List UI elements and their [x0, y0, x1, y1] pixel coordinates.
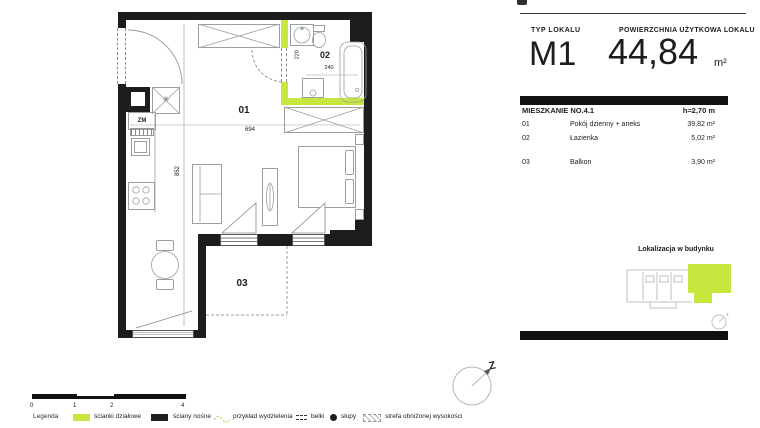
washer-door — [310, 90, 316, 96]
legend-item-label: ścianki działowe — [94, 414, 141, 421]
usable-area-value: 44,84 — [608, 34, 698, 70]
divider-bar — [520, 331, 728, 340]
header-rule — [520, 13, 746, 14]
scale-segment — [77, 396, 114, 399]
balcony-door-swing — [292, 203, 325, 233]
floorplan-sheet: ZM ✳ 01 02 03 694 852 220 240 Z z — [0, 0, 760, 428]
window-opening-line — [136, 311, 192, 328]
load-bearing-wall-swatch — [151, 414, 168, 421]
lowered-height-zone-icon — [363, 414, 381, 422]
sofa-lines — [200, 166, 221, 222]
scale-segment — [114, 394, 186, 399]
room-area: 39,82 m² — [640, 121, 715, 128]
balcony-door-swing — [222, 203, 256, 233]
room-name: Balkon — [570, 159, 591, 166]
room-no: 01 — [522, 121, 530, 128]
compass-icon — [453, 367, 491, 405]
beam-icon — [296, 415, 307, 416]
apartment-title: MIESZKANIE NO.4.1 — [522, 107, 594, 115]
legend-title: Legenda — [33, 414, 58, 421]
room-name: Pokój dzienny + aneks — [570, 121, 640, 128]
room-no: 03 — [522, 159, 530, 166]
scale-tick: 1 — [73, 403, 76, 409]
bathroom-door-swing — [252, 50, 284, 82]
balcony-boundary — [206, 246, 287, 315]
washbasin-tap — [301, 27, 303, 29]
room-area: 5,02 m² — [640, 135, 715, 142]
usable-area-unit: m² — [714, 58, 727, 69]
ceiling-height: h=2,70 m — [620, 107, 715, 115]
bathtub-inner — [344, 46, 362, 98]
beam-icon — [296, 419, 307, 420]
building-locator — [627, 264, 731, 308]
dining-table — [152, 252, 179, 279]
partition-example-icon — [214, 416, 230, 422]
fridge-cross — [152, 87, 180, 114]
wardrobe-cross — [198, 24, 280, 48]
highlighted-unit — [688, 264, 731, 303]
wardrobe-cross — [284, 107, 364, 133]
unit-type-label: TYP LOKALU — [531, 27, 581, 34]
partition-wall-swatch — [73, 414, 90, 421]
entry-door-swing — [128, 30, 182, 84]
location-title: Lokalizacja w budynku — [616, 246, 736, 253]
stove-burner — [143, 198, 149, 204]
room-area: 3,90 m² — [640, 159, 715, 166]
stove-burner — [143, 187, 149, 193]
scale-tick: 2 — [110, 403, 113, 409]
mini-compass-icon — [712, 315, 726, 329]
toilet-bowl — [313, 33, 326, 48]
scale-tick: 4 — [181, 403, 184, 409]
legend-item-label: słupy — [341, 414, 356, 421]
legend-item-label: strefa obniżonej wysokości — [385, 414, 462, 421]
scale-tick: 0 — [30, 403, 33, 409]
legend-item-label: ściany nośne — [173, 414, 211, 421]
stove-burner — [133, 187, 139, 193]
unit-type-value: M1 — [529, 37, 576, 71]
logo-fragment — [517, 0, 527, 5]
scale-segment — [32, 394, 77, 399]
stove-burner — [133, 198, 139, 204]
column-icon — [330, 414, 337, 421]
legend-item-label: przykład wydzielenia — [233, 414, 293, 421]
room-no: 02 — [522, 135, 530, 142]
bathtub-drain — [356, 89, 359, 92]
divider-bar — [520, 96, 728, 105]
room-name: Łazienka — [570, 135, 598, 142]
legend-item-label: belki — [311, 414, 324, 421]
